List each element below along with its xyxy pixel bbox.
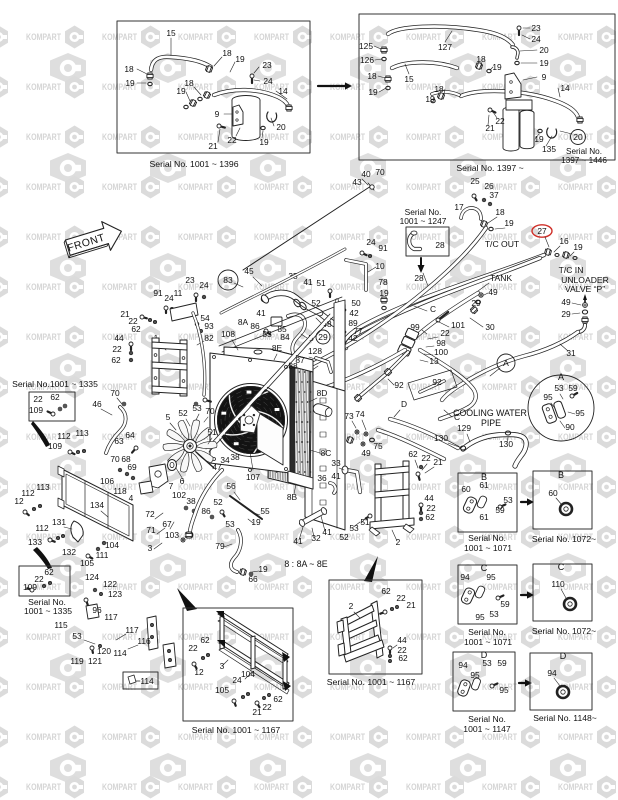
svg-text:78: 78: [378, 277, 388, 287]
svg-text:18: 18: [367, 71, 377, 81]
svg-text:119: 119: [70, 656, 84, 666]
svg-text:44: 44: [114, 333, 124, 343]
svg-text:9: 9: [542, 72, 547, 82]
svg-text:53: 53: [503, 495, 513, 505]
svg-text:9: 9: [215, 109, 220, 119]
svg-text:52: 52: [339, 532, 349, 542]
svg-text:19: 19: [573, 242, 583, 252]
svg-text:21: 21: [252, 707, 262, 717]
svg-text:96: 96: [92, 605, 102, 615]
svg-text:32: 32: [311, 533, 321, 543]
svg-text:14: 14: [560, 83, 570, 93]
svg-text:29: 29: [318, 332, 328, 342]
svg-text:60: 60: [461, 484, 471, 494]
svg-text:22: 22: [440, 328, 450, 338]
svg-text:3: 3: [148, 543, 153, 553]
svg-text:13: 13: [429, 356, 439, 366]
svg-text:19: 19: [504, 218, 514, 228]
svg-text:36: 36: [317, 473, 327, 483]
svg-text:69: 69: [127, 462, 137, 472]
svg-text:83: 83: [223, 275, 233, 285]
svg-text:12: 12: [14, 496, 24, 506]
svg-text:132: 132: [62, 547, 76, 557]
svg-text:Serial No.: Serial No.: [468, 533, 506, 543]
svg-text:74: 74: [355, 409, 365, 419]
svg-text:21: 21: [406, 600, 416, 610]
svg-text:63: 63: [114, 436, 124, 446]
svg-text:21: 21: [433, 457, 443, 467]
svg-text:21: 21: [485, 123, 495, 133]
svg-text:79: 79: [215, 541, 225, 551]
svg-text:VALVE “P”: VALVE “P”: [565, 284, 605, 294]
svg-text:19: 19: [251, 517, 261, 527]
svg-text:92: 92: [394, 380, 404, 390]
svg-text:113: 113: [36, 482, 50, 492]
svg-text:PIPE: PIPE: [481, 418, 501, 428]
svg-text:8E: 8E: [272, 343, 283, 353]
svg-text:92: 92: [432, 377, 442, 387]
svg-text:24: 24: [531, 34, 541, 44]
svg-text:19: 19: [425, 94, 435, 104]
svg-text:15: 15: [404, 74, 414, 84]
svg-text:14: 14: [278, 86, 288, 96]
svg-text:131: 131: [52, 517, 66, 527]
svg-text:17: 17: [454, 202, 464, 212]
svg-text:95: 95: [575, 408, 585, 418]
svg-text:94: 94: [460, 572, 470, 582]
svg-text:19: 19: [534, 134, 544, 144]
svg-text:23: 23: [531, 23, 541, 33]
svg-text:45: 45: [244, 266, 254, 276]
svg-text:133: 133: [28, 537, 42, 547]
svg-text:128: 128: [308, 346, 322, 356]
svg-text:Serial No. 1072~: Serial No. 1072~: [532, 626, 596, 636]
svg-text:118: 118: [113, 486, 127, 496]
svg-text:127: 127: [438, 42, 452, 52]
svg-text:Serial No.1001 ~ 1335: Serial No.1001 ~ 1335: [12, 379, 98, 389]
svg-text:53: 53: [489, 609, 499, 619]
svg-text:C: C: [558, 562, 565, 572]
svg-text:53: 53: [349, 523, 359, 533]
svg-text:Serial No. 1001 ~ 1167: Serial No. 1001 ~ 1167: [327, 677, 416, 687]
svg-text:23: 23: [262, 60, 272, 70]
svg-text:94: 94: [458, 660, 468, 670]
svg-text:18: 18: [184, 78, 194, 88]
svg-text:62: 62: [44, 567, 54, 577]
svg-text:112: 112: [35, 523, 49, 533]
svg-text:70: 70: [110, 388, 120, 398]
svg-text:19: 19: [379, 288, 389, 298]
svg-text:135: 135: [542, 144, 556, 154]
svg-text:114: 114: [113, 648, 127, 658]
svg-text:22: 22: [421, 453, 431, 463]
svg-text:34: 34: [220, 455, 230, 465]
svg-text:59: 59: [495, 505, 505, 515]
svg-text:44: 44: [397, 635, 407, 645]
svg-text:91: 91: [378, 243, 388, 253]
svg-text:22: 22: [495, 116, 505, 126]
svg-text:8B: 8B: [287, 492, 298, 502]
svg-text:31: 31: [566, 348, 576, 358]
svg-text:51: 51: [207, 427, 217, 437]
svg-text:A: A: [503, 358, 509, 368]
svg-text:21: 21: [208, 141, 218, 151]
svg-text:95: 95: [475, 612, 485, 622]
svg-text:33: 33: [331, 458, 341, 468]
svg-text:18: 18: [476, 54, 486, 64]
svg-text:8C: 8C: [321, 448, 332, 458]
svg-text:51: 51: [316, 278, 326, 288]
svg-text:62: 62: [111, 355, 121, 365]
svg-text:40: 40: [361, 169, 371, 179]
svg-text:134: 134: [90, 500, 104, 510]
svg-text:TANK: TANK: [490, 273, 513, 283]
svg-text:122: 122: [103, 579, 117, 589]
svg-text:70: 70: [205, 406, 215, 416]
svg-text:Serial No. 1001 ~ 1167: Serial No. 1001 ~ 1167: [192, 725, 281, 735]
svg-text:111: 111: [96, 550, 109, 560]
svg-text:19: 19: [258, 564, 268, 574]
svg-text:71: 71: [146, 525, 156, 535]
svg-text:62: 62: [425, 512, 435, 522]
svg-text:53: 53: [225, 519, 235, 529]
svg-text:22: 22: [262, 702, 272, 712]
svg-text:42: 42: [348, 333, 358, 343]
svg-text:91: 91: [153, 288, 163, 298]
svg-text:84: 84: [280, 332, 290, 342]
svg-text:27: 27: [537, 226, 547, 236]
svg-text:11: 11: [174, 288, 183, 298]
svg-text:29: 29: [561, 309, 571, 319]
svg-text:D: D: [401, 399, 407, 409]
svg-text:1001 ~ 1335: 1001 ~ 1335: [24, 606, 72, 616]
svg-text:56: 56: [226, 481, 236, 491]
svg-text:86: 86: [250, 321, 260, 331]
svg-text:55: 55: [260, 506, 270, 516]
svg-text:1397 ~ 1446: 1397 ~ 1446: [561, 156, 607, 165]
svg-text:15: 15: [166, 28, 176, 38]
svg-text:62: 62: [200, 635, 210, 645]
svg-text:Serial No.: Serial No.: [468, 714, 506, 724]
svg-text:94: 94: [547, 668, 557, 678]
svg-text:107: 107: [246, 472, 260, 482]
svg-text:126: 126: [360, 55, 374, 65]
svg-text:19: 19: [492, 62, 502, 72]
svg-text:42: 42: [349, 308, 359, 318]
svg-text:20: 20: [539, 45, 549, 55]
svg-text:103: 103: [165, 530, 179, 540]
svg-text:19: 19: [235, 54, 245, 64]
svg-text:113: 113: [75, 428, 89, 438]
svg-text:62: 62: [381, 586, 391, 596]
svg-text:22: 22: [396, 593, 406, 603]
svg-text:19: 19: [176, 86, 186, 96]
svg-text:115: 115: [54, 620, 68, 630]
svg-text:95: 95: [470, 670, 480, 680]
svg-text:20: 20: [276, 122, 286, 132]
svg-text:25: 25: [470, 176, 480, 186]
svg-text:2: 2: [396, 537, 401, 547]
svg-text:52: 52: [178, 408, 188, 418]
svg-text:19: 19: [125, 78, 135, 88]
svg-text:130: 130: [434, 433, 448, 443]
svg-text:124: 124: [85, 572, 99, 582]
svg-text:D: D: [560, 651, 567, 661]
svg-text:T/C IN: T/C IN: [559, 265, 584, 275]
svg-text:49: 49: [361, 448, 371, 458]
svg-text:29: 29: [471, 298, 481, 308]
svg-text:60: 60: [548, 488, 558, 498]
svg-text:19: 19: [368, 87, 378, 97]
svg-text:59: 59: [497, 658, 507, 668]
svg-text:24: 24: [366, 237, 376, 247]
svg-text:72: 72: [145, 509, 155, 519]
svg-text:93: 93: [204, 321, 214, 331]
svg-text:121: 121: [88, 656, 102, 666]
svg-text:106: 106: [100, 476, 114, 486]
svg-text:COOLING WATER: COOLING WATER: [453, 408, 527, 418]
svg-text:41: 41: [256, 308, 266, 318]
svg-text:116: 116: [137, 636, 151, 646]
svg-text:Serial No. 1001 ~ 1396: Serial No. 1001 ~ 1396: [149, 159, 238, 169]
svg-text:4: 4: [129, 493, 134, 503]
svg-text:49: 49: [488, 287, 498, 297]
svg-text:112: 112: [57, 431, 71, 441]
svg-text:19: 19: [259, 137, 269, 147]
svg-text:53: 53: [72, 631, 82, 641]
svg-text:53: 53: [554, 383, 564, 393]
svg-text:22: 22: [33, 394, 43, 404]
svg-text:95: 95: [486, 572, 496, 582]
svg-text:A: A: [558, 372, 564, 382]
svg-text:T/C OUT: T/C OUT: [485, 239, 520, 249]
svg-text:90: 90: [565, 422, 575, 432]
svg-text:23: 23: [185, 275, 195, 285]
svg-text:62: 62: [398, 653, 408, 663]
svg-text:22: 22: [112, 344, 122, 354]
svg-text:62: 62: [50, 392, 60, 402]
svg-text:1001 ~ 1247: 1001 ~ 1247: [400, 216, 447, 226]
svg-text:24: 24: [199, 280, 209, 290]
svg-text:61: 61: [479, 480, 489, 490]
svg-text:105: 105: [215, 685, 229, 695]
svg-text:50: 50: [351, 298, 361, 308]
svg-text:70: 70: [110, 454, 120, 464]
svg-text:C: C: [430, 304, 436, 314]
svg-text:70: 70: [375, 167, 385, 177]
svg-text:37: 37: [489, 190, 499, 200]
svg-text:8D: 8D: [317, 388, 328, 398]
svg-text:95: 95: [499, 685, 509, 695]
svg-text:24: 24: [232, 675, 242, 685]
svg-text:B: B: [558, 470, 564, 480]
svg-text:130: 130: [499, 439, 513, 449]
svg-text:1001 ~ 1147: 1001 ~ 1147: [463, 724, 511, 734]
svg-text:1001 ~ 1071: 1001 ~ 1071: [464, 543, 512, 553]
svg-text:18: 18: [124, 64, 134, 74]
svg-text:22: 22: [188, 643, 198, 653]
svg-text:24: 24: [263, 76, 273, 86]
svg-text:59: 59: [500, 599, 510, 609]
svg-text:Serial No. 1397 ~: Serial No. 1397 ~: [456, 163, 523, 173]
svg-text:95: 95: [543, 392, 553, 402]
svg-text:38: 38: [230, 452, 240, 462]
svg-text:41: 41: [331, 471, 341, 481]
svg-text:41: 41: [303, 277, 313, 287]
svg-text:16: 16: [559, 236, 569, 246]
svg-text:88: 88: [288, 361, 298, 371]
svg-text:20: 20: [573, 132, 583, 142]
svg-text:Serial No.: Serial No.: [468, 627, 506, 637]
svg-text:1001 ~ 1071: 1001 ~ 1071: [464, 637, 512, 647]
svg-text:66: 66: [248, 574, 258, 584]
svg-text:75: 75: [373, 441, 383, 451]
svg-text:104: 104: [241, 669, 255, 679]
svg-text:123: 123: [108, 589, 122, 599]
svg-text:41: 41: [322, 527, 332, 537]
svg-text:38: 38: [186, 496, 196, 506]
svg-text:62: 62: [273, 694, 283, 704]
svg-text:49: 49: [561, 297, 571, 307]
svg-text:Serial No. 1148~: Serial No. 1148~: [533, 713, 597, 723]
svg-text:19: 19: [539, 58, 549, 68]
svg-text:8A: 8A: [238, 317, 249, 327]
svg-text:5: 5: [166, 412, 171, 422]
svg-text:114: 114: [140, 676, 154, 686]
svg-text:101: 101: [451, 320, 465, 330]
svg-text:30: 30: [485, 322, 495, 332]
svg-text:110: 110: [551, 579, 565, 589]
svg-text:Serial No. 1072~: Serial No. 1072~: [532, 534, 596, 544]
svg-text:129: 129: [457, 423, 471, 433]
svg-text:125: 125: [359, 41, 373, 51]
svg-text:46: 46: [92, 399, 102, 409]
svg-text:104: 104: [105, 540, 119, 550]
svg-text:52: 52: [213, 497, 223, 507]
svg-text:64: 64: [125, 430, 135, 440]
svg-text:8 : 8A ~ 8E: 8 : 8A ~ 8E: [284, 559, 327, 569]
svg-text:61: 61: [479, 512, 489, 522]
svg-text:10: 10: [375, 261, 385, 271]
svg-text:99: 99: [410, 322, 420, 332]
svg-text:44: 44: [424, 493, 434, 503]
svg-text:102: 102: [172, 490, 186, 500]
svg-text:28: 28: [414, 273, 424, 283]
svg-text:18: 18: [222, 48, 232, 58]
svg-text:Serial No.: Serial No.: [566, 147, 602, 156]
svg-text:24: 24: [164, 293, 174, 303]
svg-text:2: 2: [349, 601, 354, 611]
svg-text:18: 18: [434, 84, 444, 94]
svg-text:43: 43: [352, 177, 362, 187]
svg-text:28: 28: [435, 240, 445, 250]
svg-text:82: 82: [204, 333, 214, 343]
svg-text:117: 117: [125, 625, 139, 635]
svg-text:117: 117: [104, 612, 118, 622]
svg-text:108: 108: [221, 329, 235, 339]
svg-text:109: 109: [48, 441, 62, 451]
svg-text:22: 22: [227, 135, 237, 145]
svg-text:86: 86: [201, 506, 211, 516]
svg-text:62: 62: [408, 449, 418, 459]
svg-text:41: 41: [293, 536, 303, 546]
svg-text:73: 73: [344, 411, 354, 421]
svg-text:18: 18: [495, 207, 505, 217]
svg-text:59: 59: [568, 383, 578, 393]
svg-text:109: 109: [29, 405, 43, 415]
svg-text:62: 62: [131, 324, 141, 334]
svg-text:53: 53: [482, 658, 492, 668]
